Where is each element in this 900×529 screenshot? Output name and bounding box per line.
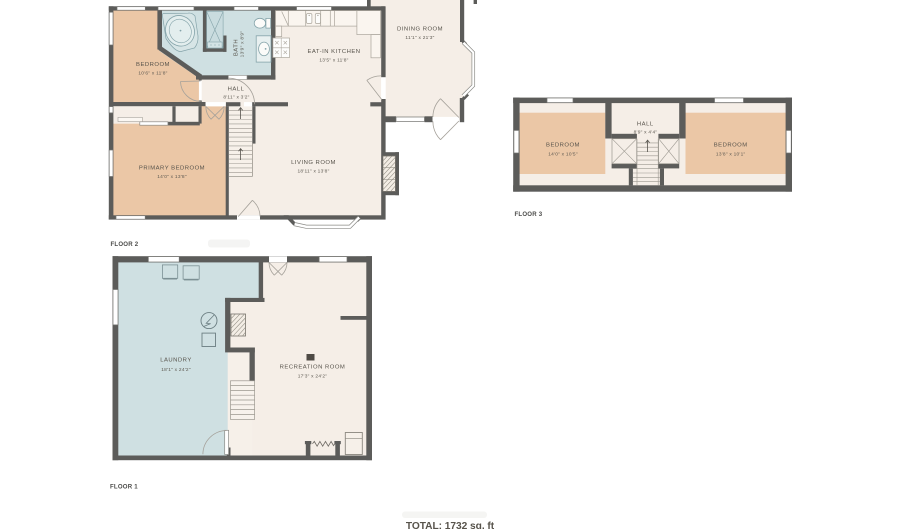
- svg-text:FLOOR 2: FLOOR 2: [111, 241, 139, 248]
- svg-text:13'8" x 10'1": 13'8" x 10'1": [716, 151, 746, 157]
- svg-text:HALL: HALL: [637, 121, 654, 127]
- svg-text:8'11" x 3'2": 8'11" x 3'2": [223, 95, 249, 101]
- svg-text:13'5" x 11'8": 13'5" x 11'8": [319, 58, 348, 64]
- svg-text:11'1" x 21'3": 11'1" x 21'3": [405, 35, 434, 41]
- svg-text:LAUNDRY: LAUNDRY: [160, 357, 192, 363]
- svg-text:FLOOR 3: FLOOR 3: [515, 211, 543, 218]
- svg-text:EAT-IN KITCHEN: EAT-IN KITCHEN: [307, 49, 360, 55]
- svg-text:14'0" x 13'8": 14'0" x 13'8": [157, 174, 187, 180]
- svg-text:BEDROOM: BEDROOM: [714, 142, 748, 148]
- svg-text:18'1" x 24'2": 18'1" x 24'2": [161, 367, 191, 373]
- svg-text:BATH: BATH: [233, 39, 239, 56]
- svg-text:DINING ROOM: DINING ROOM: [397, 26, 443, 32]
- svg-text:PRIMARY BEDROOM: PRIMARY BEDROOM: [139, 165, 205, 171]
- svg-text:8'9" x 4'4": 8'9" x 4'4": [634, 130, 658, 136]
- svg-text:LIVING ROOM: LIVING ROOM: [291, 160, 336, 166]
- svg-text:14'0" x 10'5": 14'0" x 10'5": [548, 151, 578, 157]
- svg-text:10'6" x 11'8": 10'6" x 11'8": [138, 71, 167, 77]
- svg-text:18'11" x 13'8": 18'11" x 13'8": [297, 168, 329, 174]
- svg-text:FLOOR 1: FLOOR 1: [110, 484, 138, 491]
- svg-text:BEDROOM: BEDROOM: [136, 62, 170, 68]
- svg-text:BEDROOM: BEDROOM: [546, 142, 580, 148]
- svg-text:17'3" x 24'2": 17'3" x 24'2": [298, 373, 328, 379]
- svg-text:HALL: HALL: [228, 86, 245, 92]
- svg-text:TOTAL: 1732 sq. ft: TOTAL: 1732 sq. ft: [406, 521, 495, 529]
- svg-text:13'9" x 8'9": 13'9" x 8'9": [240, 31, 246, 58]
- svg-text:RECREATION ROOM: RECREATION ROOM: [280, 364, 346, 370]
